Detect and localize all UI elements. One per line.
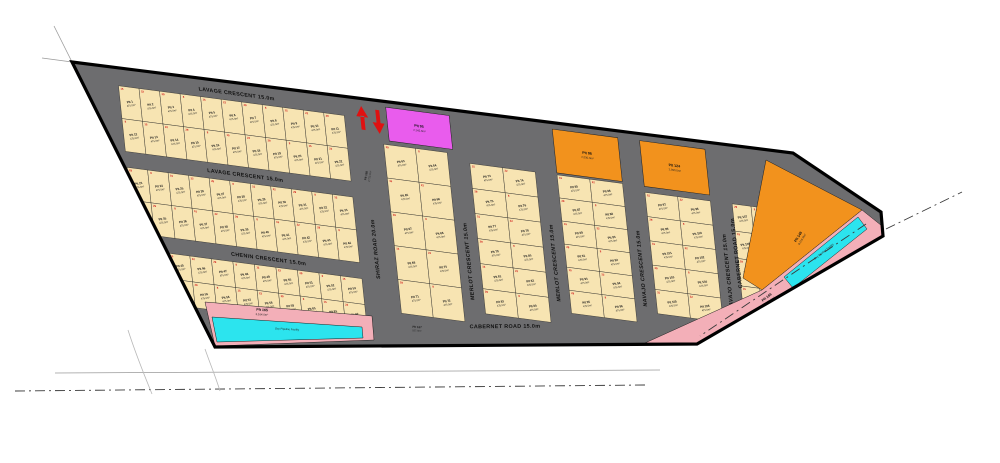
pipeline-centerline-ext: [886, 192, 962, 229]
lot-block-col-4: Plt 97475.0m²15Plt 98475.0m²22Plt 99475.…: [645, 192, 723, 322]
plot-corner-number: 22: [132, 201, 136, 205]
subdivision-plat-map: Plt 1475.0m²15Plt 2475.0m²22Plt 3475.0m²…: [0, 0, 1000, 463]
survey-line-bottom: [55, 370, 660, 373]
survey-curve-2: [205, 349, 220, 391]
boundary-extension-top: [42, 58, 72, 62]
orange-plot-1: Plt 982,030.0m²: [552, 129, 622, 181]
orange-plot-2: Plt 1242,050.0m²: [639, 141, 709, 195]
pink-plot-left-label: Plt 1653,164.0m²: [255, 308, 268, 317]
boundary-extension-left: [54, 26, 72, 62]
plot-area-label: 475.0m²: [138, 217, 148, 222]
road-centerline-bottom: [15, 385, 645, 391]
survey-curve-1: [128, 330, 152, 394]
plot-167-label: Plt 167557.0m²: [412, 325, 422, 333]
street-label-cabernet-road-15-0m: CABERNET ROAD 15.0m: [470, 324, 541, 331]
plat-svg: Plt 1475.0m²15Plt 2475.0m²22Plt 3475.0m²…: [0, 0, 1000, 463]
plot-167-area-label: 557.0m²: [412, 329, 421, 332]
plot-number-label: Plt 34: [137, 214, 146, 219]
plot-label-group: Plt 34475.0m²: [137, 214, 149, 223]
plot-corner-number: 22: [173, 280, 177, 284]
